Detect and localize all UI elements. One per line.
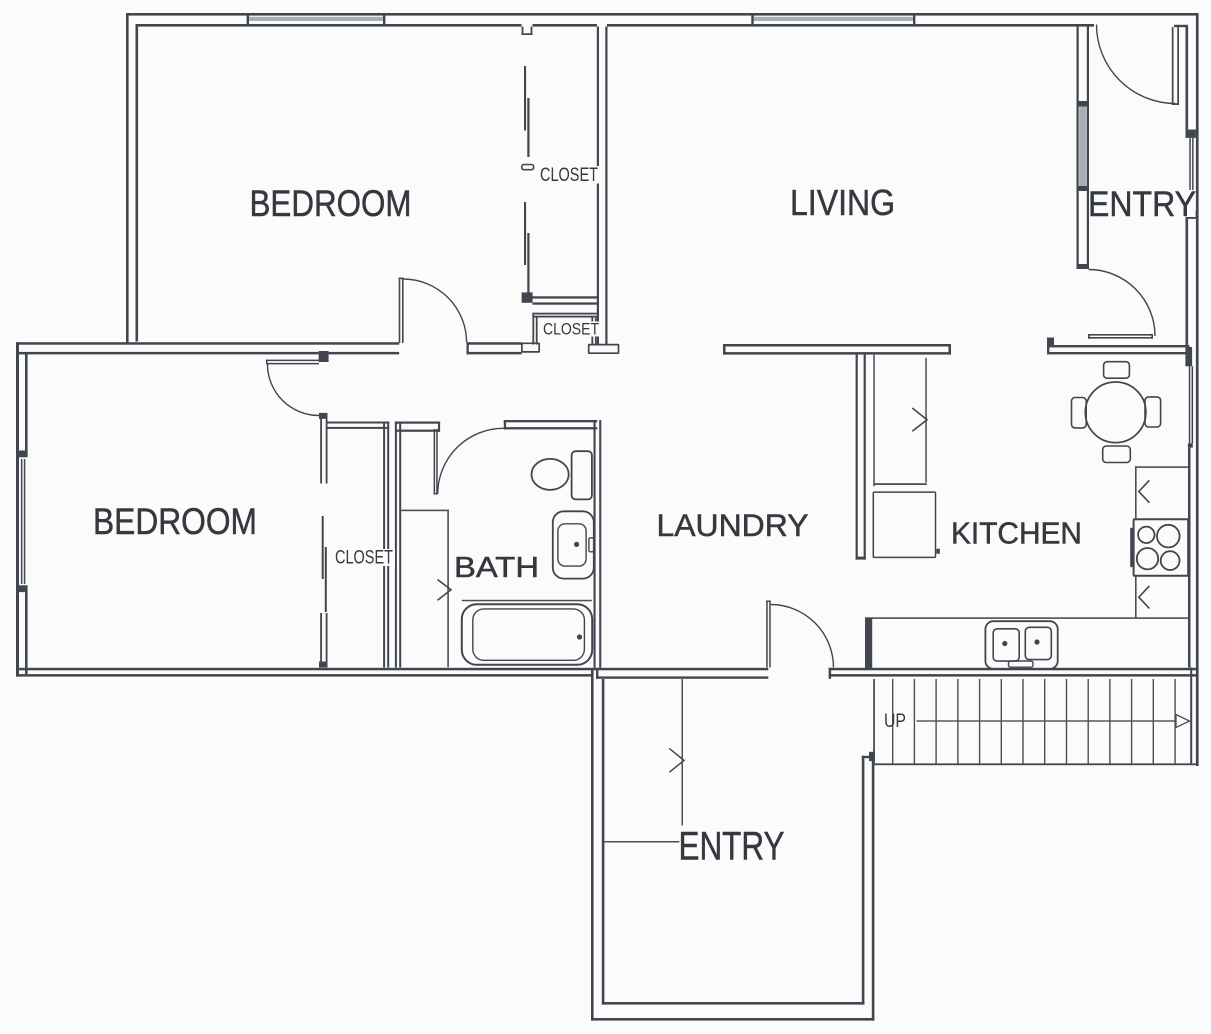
svg-text:LAUNDRY: LAUNDRY [657,507,809,543]
svg-text:CLOSET: CLOSET [335,547,393,569]
svg-text:CLOSET: CLOSET [540,164,598,186]
svg-text:UP: UP [884,711,906,732]
svg-text:ENTRY: ENTRY [1088,185,1196,224]
svg-text:BEDROOM: BEDROOM [93,500,257,542]
svg-text:KITCHEN: KITCHEN [951,516,1082,551]
svg-text:LIVING: LIVING [790,182,895,223]
svg-text:BEDROOM: BEDROOM [250,182,412,224]
svg-text:BATH: BATH [454,552,539,584]
svg-text:CLOSET: CLOSET [543,321,599,339]
svg-text:ENTRY: ENTRY [679,825,785,869]
